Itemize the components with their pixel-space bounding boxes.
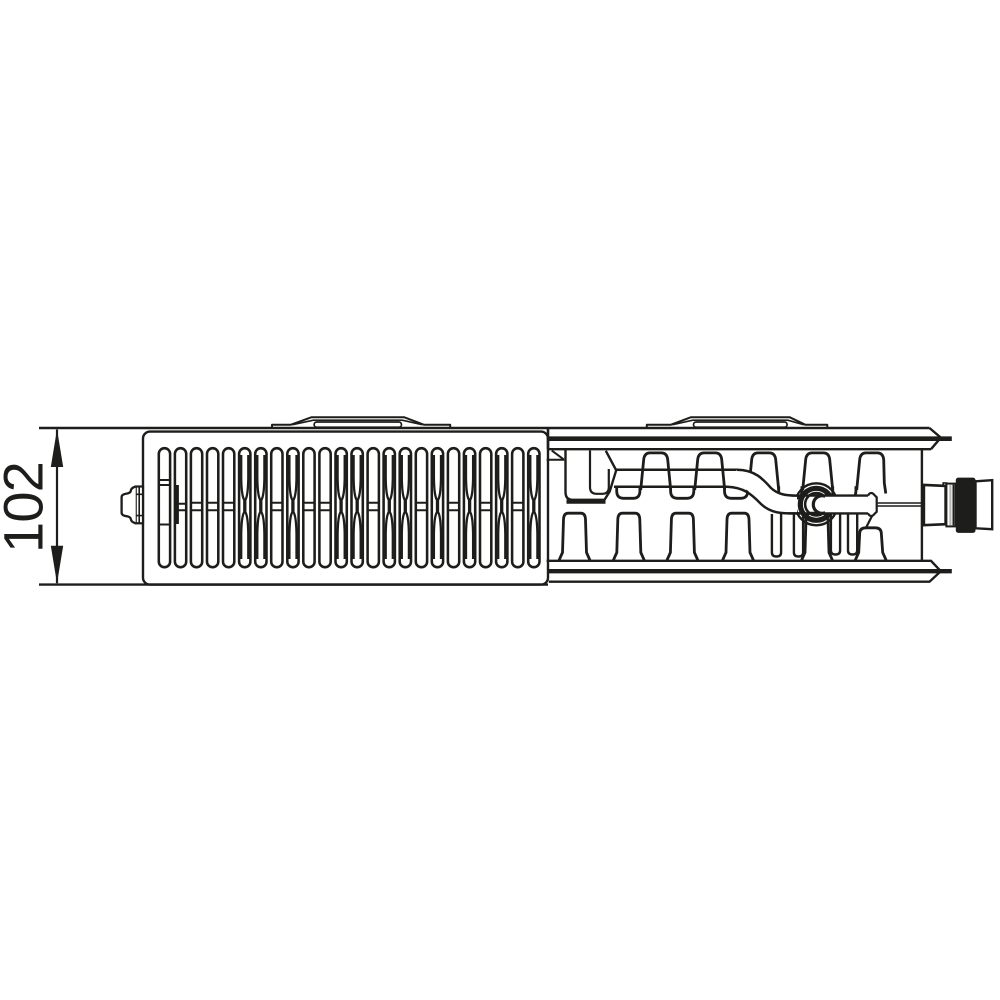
svg-text:102: 102 xyxy=(0,462,55,553)
